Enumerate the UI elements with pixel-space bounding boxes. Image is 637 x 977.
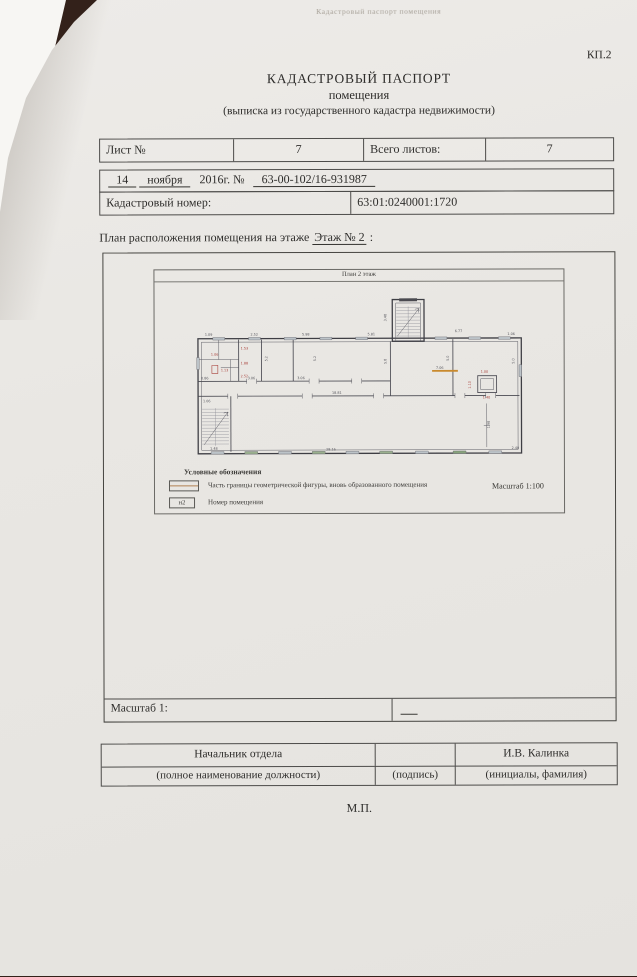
sheet-label: Лист №: [100, 139, 233, 161]
document-title: КАДАСТРОВЫЙ ПАСПОРТ помещения (выписка и…: [99, 70, 619, 118]
document-content: Кадастровый паспорт помещения КП.2 КАДАС…: [0, 0, 637, 977]
stamp-place-label: М.П.: [101, 800, 618, 816]
dimension-label: 2.40: [512, 446, 519, 450]
plan-caption-floor: Этаж № 2: [312, 230, 366, 245]
dimension-label: 18.81: [332, 391, 342, 395]
signature-row-hints: (полное наименование должности) (подпись…: [102, 765, 617, 785]
dimension-label: 28.16: [326, 447, 336, 451]
reg-day: 14: [108, 172, 136, 187]
total-sheets-value: 7: [485, 138, 613, 160]
document-page: Кадастровый паспорт помещения КП.2 КАДАС…: [0, 0, 637, 976]
dimension-label: 5.0: [511, 358, 515, 363]
total-sheets-label: Всего листов:: [363, 139, 485, 161]
dimension-label: 1.98: [487, 421, 491, 428]
title-line-2: помещения: [99, 87, 619, 104]
official-position: Начальник отдела: [102, 744, 375, 767]
registration-date-row: 14 ноября 2016г. № 63-00-102/16-931987: [99, 168, 614, 192]
dimension-label: 5.98: [302, 332, 309, 336]
dimension-label: 5.2: [264, 356, 268, 361]
dimension-label: 1.13: [221, 368, 228, 372]
legend-boundary-label: Часть границы геометрической фигуры, вно…: [208, 481, 427, 490]
reg-doc-number: 63-00-102/16-931987: [254, 172, 375, 187]
floor-plan-box: 1.092.525.985.816.771.061.531.061.881.13…: [102, 251, 616, 722]
staircase-bottom-left: [202, 396, 231, 452]
dimension-label: 0.86: [201, 376, 208, 380]
dimension-label: 5.81: [368, 332, 375, 336]
dimension-label: 5.0: [446, 356, 450, 361]
legend-number-label: Номер помещения: [208, 498, 263, 506]
scale-row-blank-line: [401, 714, 418, 715]
shaft-room: [478, 376, 497, 393]
scale-row-label: Масштаб 1:: [111, 702, 168, 714]
dimension-label: 7.06: [436, 366, 443, 370]
plan-title: План 2 этаж: [154, 270, 563, 278]
dimension-label: 1.40: [483, 395, 490, 399]
reg-month: ноября: [139, 172, 190, 187]
legend-title: Условные обозначения: [184, 467, 261, 476]
dimension-label: 1.88: [241, 361, 248, 365]
rooms-bottom-wall: [198, 378, 390, 383]
corridor-wall: [198, 393, 519, 399]
plan-scale-note: Масштаб 1:100: [492, 481, 544, 490]
signature-hint: (подпись): [375, 766, 455, 785]
dimension-label: 2.52: [250, 333, 257, 337]
legend-boundary-symbol: [169, 480, 199, 491]
sheet-number-table: Лист № 7 Всего листов: 7: [99, 137, 614, 162]
dimension-label: 3.48: [383, 314, 387, 321]
cadastral-number-row: Кадастровый номер: 63:01:0240001:1720: [99, 190, 614, 215]
cadastral-label: Кадастровый номер:: [100, 192, 350, 215]
sheet-value: 7: [233, 139, 363, 161]
plan-caption-prefix: План расположения помещения на этаже: [99, 230, 309, 245]
interior-partitions: [239, 339, 453, 396]
floor-plan-drawing: 1.092.525.985.816.771.061.531.061.881.13…: [154, 269, 564, 513]
plan-caption-suffix: :: [370, 230, 373, 244]
dimension-label: 5.8: [383, 359, 387, 364]
legend-number-symbol: н2: [169, 497, 195, 508]
reg-year: 2016г. №: [200, 172, 245, 186]
floor-plan-frame: 1.092.525.985.816.771.061.531.061.881.13…: [153, 268, 565, 514]
dimension-label: 1.06: [507, 332, 514, 336]
name-hint: (инициалы, фамилия): [455, 765, 617, 784]
dimension-label: 3.06: [248, 376, 255, 380]
scale-row: Масштаб 1:: [105, 697, 616, 721]
official-name: И.В. Калинка: [455, 743, 617, 765]
dimension-label: 3.06: [297, 376, 304, 380]
dimension-label: 1.06: [203, 399, 210, 403]
plan-caption: План расположения помещения на этаже Эта…: [99, 230, 373, 246]
dimension-label: 5.2: [313, 356, 317, 361]
signature-space: [375, 744, 455, 766]
scale-row-divider: [392, 699, 393, 721]
dimension-label: 1.06: [211, 353, 218, 357]
signature-row-values: Начальник отдела И.В. Калинка: [102, 743, 617, 766]
stair-tower: [392, 298, 424, 341]
cadastral-value: 63:01:0240001:1720: [350, 191, 613, 214]
title-line-1: КАДАСТРОВЫЙ ПАСПОРТ: [99, 70, 619, 88]
form-code: КП.2: [587, 49, 612, 61]
dimension-label: 1.53: [241, 347, 248, 351]
windows-bottom: [211, 451, 502, 454]
title-line-3: (выписка из государственного кадастра не…: [99, 103, 619, 119]
running-header: Кадастровый паспорт помещения: [159, 6, 599, 16]
small-room-cluster: [198, 340, 239, 382]
dimension-label: 1.09: [205, 333, 212, 337]
position-hint: (полное наименование должности): [102, 766, 375, 786]
legend-boundary-line: [170, 485, 198, 486]
dimension-label: 1.10: [468, 381, 472, 388]
dimension-label: 1.48: [210, 447, 217, 451]
dimension-label: 1.00: [481, 370, 488, 374]
dimension-label: 6.77: [455, 329, 462, 333]
signature-table: Начальник отдела И.В. Калинка (полное на…: [101, 742, 618, 786]
